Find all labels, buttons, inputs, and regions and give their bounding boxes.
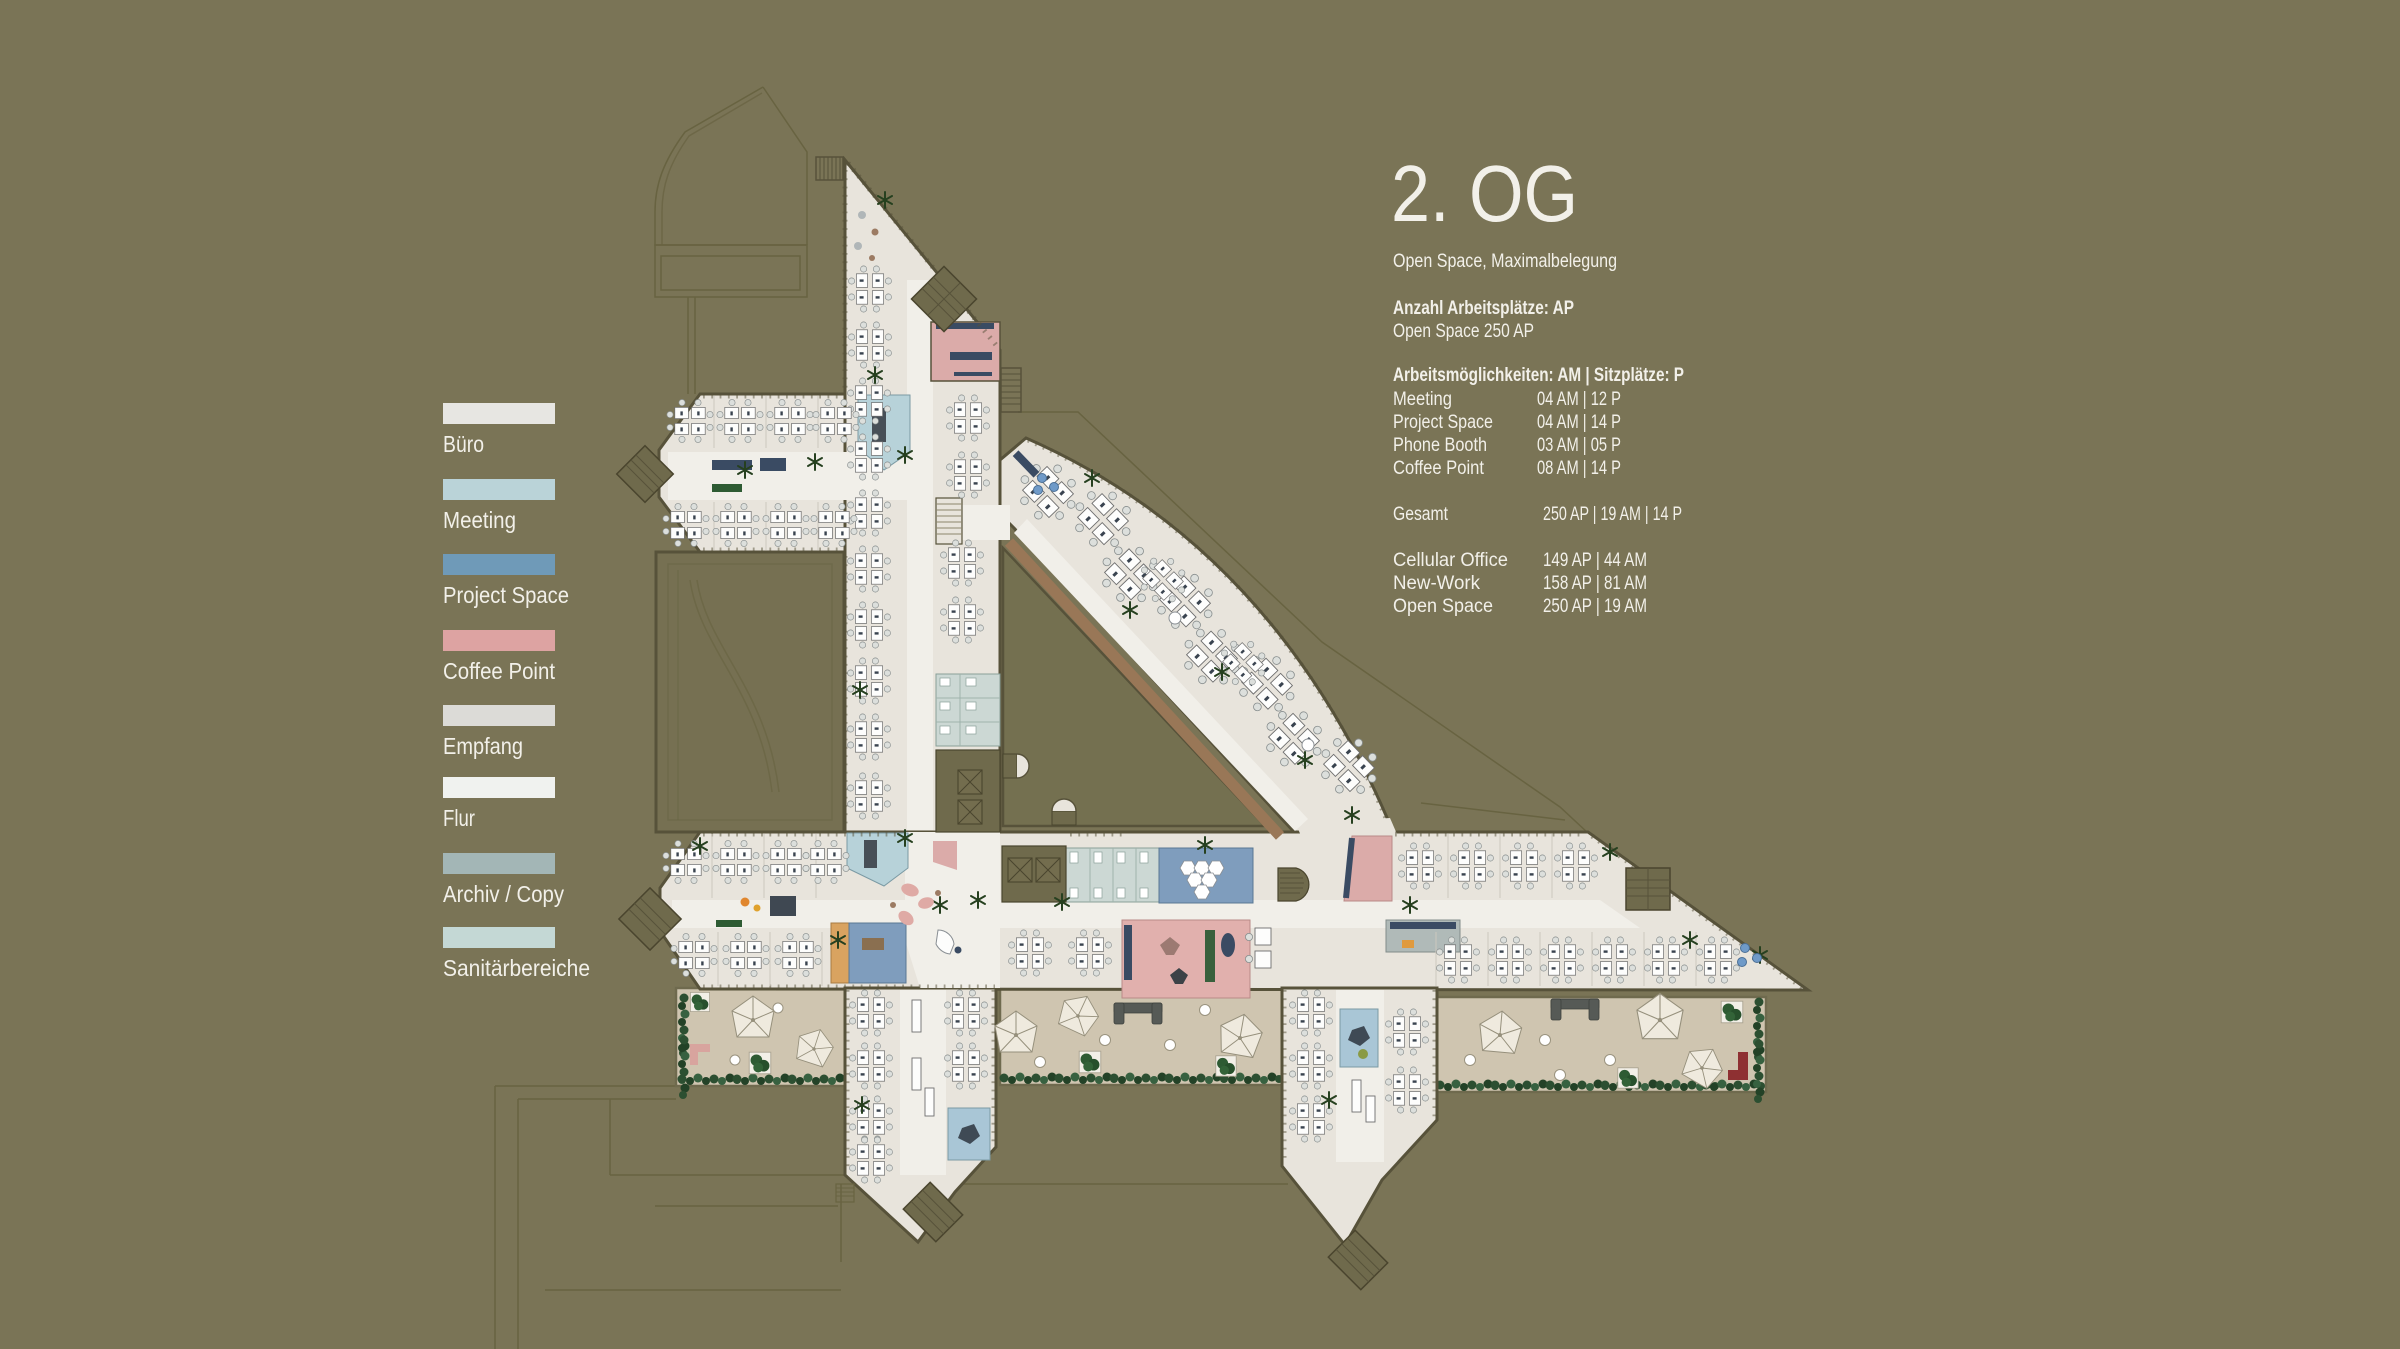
- svg-text:08 AM | 14 P: 08 AM | 14 P: [1537, 458, 1621, 479]
- svg-text:Phone Booth: Phone Booth: [1393, 435, 1487, 456]
- svg-text:158 AP | 81 AM: 158 AP | 81 AM: [1543, 573, 1647, 594]
- svg-text:149 AP | 44 AM: 149 AP | 44 AM: [1543, 550, 1647, 571]
- svg-text:Project Space: Project Space: [443, 582, 569, 608]
- svg-text:Meeting: Meeting: [443, 507, 516, 533]
- svg-text:Büro: Büro: [443, 431, 484, 457]
- svg-text:Coffee Point: Coffee Point: [1393, 458, 1485, 479]
- svg-text:Coffee Point: Coffee Point: [443, 658, 556, 684]
- svg-text:Sanitärbereiche: Sanitärbereiche: [443, 955, 590, 981]
- svg-text:2. OG: 2. OG: [1391, 149, 1578, 238]
- svg-text:Flur: Flur: [443, 805, 475, 831]
- svg-text:New-Work: New-Work: [1393, 573, 1480, 594]
- svg-text:Empfang: Empfang: [443, 733, 523, 759]
- svg-text:03 AM | 05 P: 03 AM | 05 P: [1537, 435, 1621, 456]
- svg-text:Open Space 250 AP: Open Space 250 AP: [1393, 321, 1534, 342]
- svg-text:Archiv / Copy: Archiv / Copy: [443, 881, 564, 907]
- svg-text:04 AM | 14 P: 04 AM | 14 P: [1537, 412, 1621, 433]
- svg-text:250 AP | 19 AM | 14 P: 250 AP | 19 AM | 14 P: [1543, 504, 1682, 525]
- svg-text:Cellular Office: Cellular Office: [1393, 550, 1508, 571]
- svg-text:04 AM | 12 P: 04 AM | 12 P: [1537, 389, 1621, 410]
- svg-text:Project Space: Project Space: [1393, 412, 1493, 433]
- svg-text:Gesamt: Gesamt: [1393, 504, 1449, 525]
- svg-text:Meeting: Meeting: [1393, 389, 1452, 410]
- svg-text:Anzahl Arbeitsplätze: AP: Anzahl Arbeitsplätze: AP: [1393, 298, 1574, 319]
- svg-text:Arbeitsmöglichkeiten: AM | Sit: Arbeitsmöglichkeiten: AM | Sitzplätze: P: [1393, 365, 1684, 386]
- svg-text:Open Space, Maximalbelegung: Open Space, Maximalbelegung: [1393, 251, 1617, 272]
- svg-text:250 AP | 19 AM: 250 AP | 19 AM: [1543, 596, 1647, 617]
- svg-text:Open Space: Open Space: [1393, 596, 1493, 617]
